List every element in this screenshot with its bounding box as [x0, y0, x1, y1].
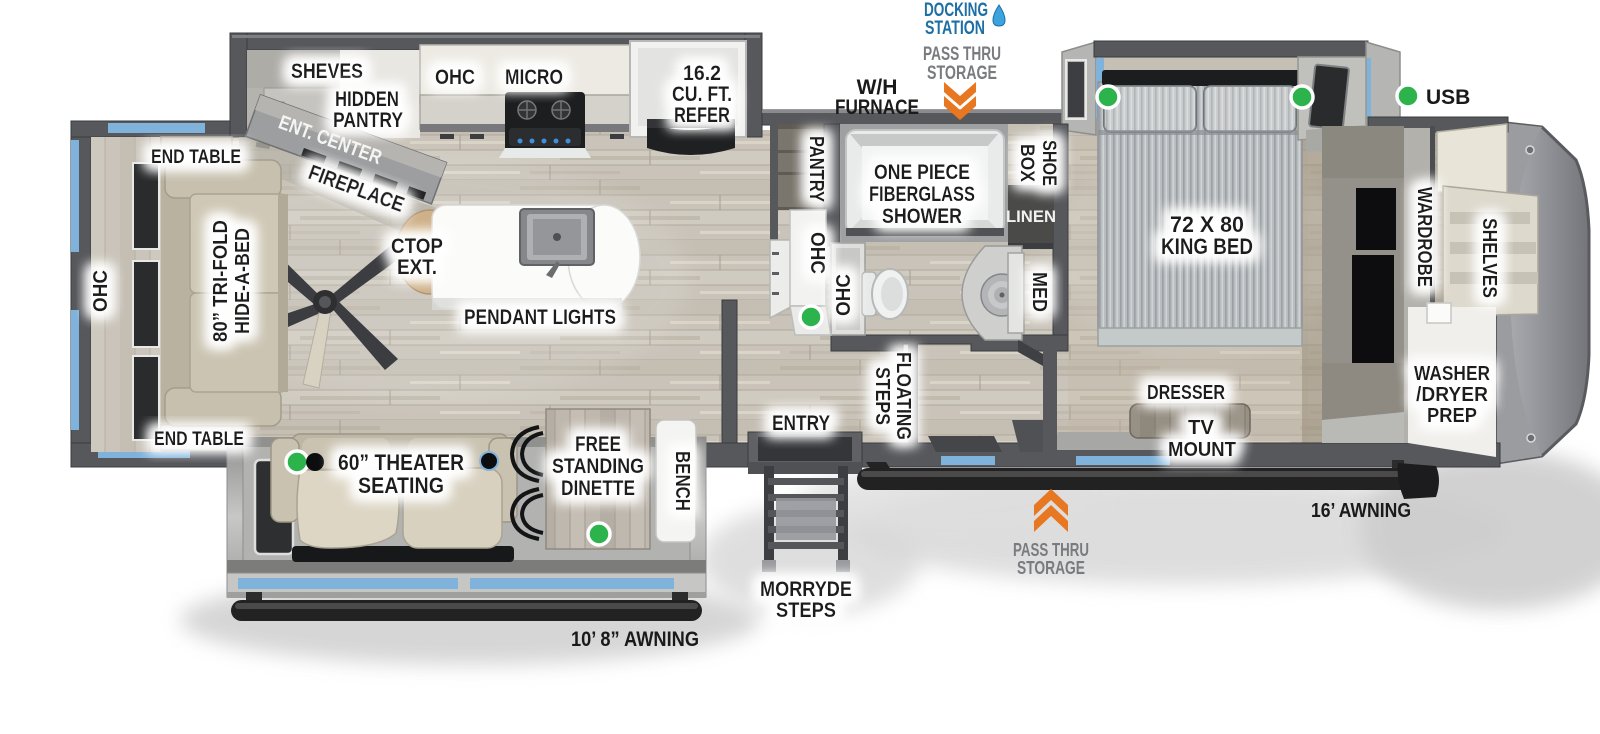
- svg-text:FURNACE: FURNACE: [835, 96, 919, 119]
- svg-text:STEPS: STEPS: [871, 367, 893, 425]
- svg-text:CTOP: CTOP: [391, 235, 443, 258]
- svg-text:SHEVES: SHEVES: [291, 60, 363, 83]
- svg-text:SHOE: SHOE: [1038, 140, 1059, 186]
- svg-text:FLOATING: FLOATING: [892, 352, 914, 440]
- svg-text:PASS THRU: PASS THRU: [923, 44, 1001, 65]
- svg-text:PENDANT LIGHTS: PENDANT LIGHTS: [464, 306, 616, 329]
- svg-text:16’ AWNING: 16’ AWNING: [1311, 500, 1411, 522]
- svg-text:PASS THRU: PASS THRU: [1013, 540, 1089, 560]
- svg-text:SEATING: SEATING: [358, 473, 444, 498]
- svg-text:SHELVES: SHELVES: [1478, 218, 1500, 298]
- svg-text:STANDING: STANDING: [552, 455, 644, 478]
- svg-text:WARDROBE: WARDROBE: [1413, 187, 1435, 287]
- svg-text:BOX: BOX: [1016, 144, 1037, 182]
- svg-text:PREP: PREP: [1427, 405, 1477, 427]
- svg-text:OHC: OHC: [90, 270, 112, 312]
- svg-text:KING BED: KING BED: [1161, 234, 1253, 259]
- svg-text:MORRYDE: MORRYDE: [760, 578, 852, 601]
- svg-text:BENCH: BENCH: [671, 451, 693, 511]
- svg-text:LINEN: LINEN: [1006, 207, 1056, 226]
- svg-text:CU. FT.: CU. FT.: [672, 83, 732, 106]
- svg-text:USB: USB: [1426, 86, 1470, 109]
- svg-text:80” TRI-FOLD: 80” TRI-FOLD: [210, 220, 232, 342]
- svg-text:STATION: STATION: [925, 18, 985, 39]
- svg-text:16.2: 16.2: [683, 62, 721, 85]
- svg-text:10’ 8” AWNING: 10’ 8” AWNING: [571, 628, 699, 651]
- svg-text:FIBERGLASS: FIBERGLASS: [869, 183, 975, 206]
- svg-text:HIDE-A-BED: HIDE-A-BED: [232, 228, 254, 334]
- svg-text:DINETTE: DINETTE: [561, 477, 635, 500]
- svg-text:WASHER: WASHER: [1414, 363, 1490, 385]
- svg-text:PANTRY: PANTRY: [805, 136, 827, 203]
- svg-text:/DRYER: /DRYER: [1416, 384, 1489, 406]
- svg-text:TV: TV: [1188, 417, 1215, 439]
- svg-text:STEPS: STEPS: [776, 599, 836, 622]
- svg-text:ENTRY: ENTRY: [772, 412, 830, 435]
- svg-text:STORAGE: STORAGE: [1017, 558, 1085, 578]
- svg-text:STORAGE: STORAGE: [927, 63, 997, 84]
- svg-text:FREE: FREE: [575, 433, 621, 456]
- svg-text:PANTRY: PANTRY: [333, 109, 403, 132]
- svg-text:ONE PIECE: ONE PIECE: [874, 161, 970, 184]
- svg-text:OHC: OHC: [806, 232, 828, 274]
- svg-text:HIDDEN: HIDDEN: [335, 88, 399, 111]
- svg-text:MOUNT: MOUNT: [1168, 439, 1236, 461]
- svg-text:OHC: OHC: [833, 274, 855, 316]
- svg-text:REFER: REFER: [674, 104, 730, 127]
- svg-text:OHC: OHC: [435, 66, 475, 89]
- svg-text:DRESSER: DRESSER: [1147, 382, 1225, 404]
- svg-text:60” THEATER: 60” THEATER: [338, 450, 464, 475]
- svg-text:MICRO: MICRO: [505, 66, 563, 89]
- svg-text:END TABLE: END TABLE: [154, 429, 244, 450]
- svg-text:EXT.: EXT.: [397, 256, 437, 279]
- svg-text:SHOWER: SHOWER: [882, 205, 962, 228]
- svg-text:MED: MED: [1028, 272, 1050, 312]
- svg-text:END TABLE: END TABLE: [151, 147, 241, 168]
